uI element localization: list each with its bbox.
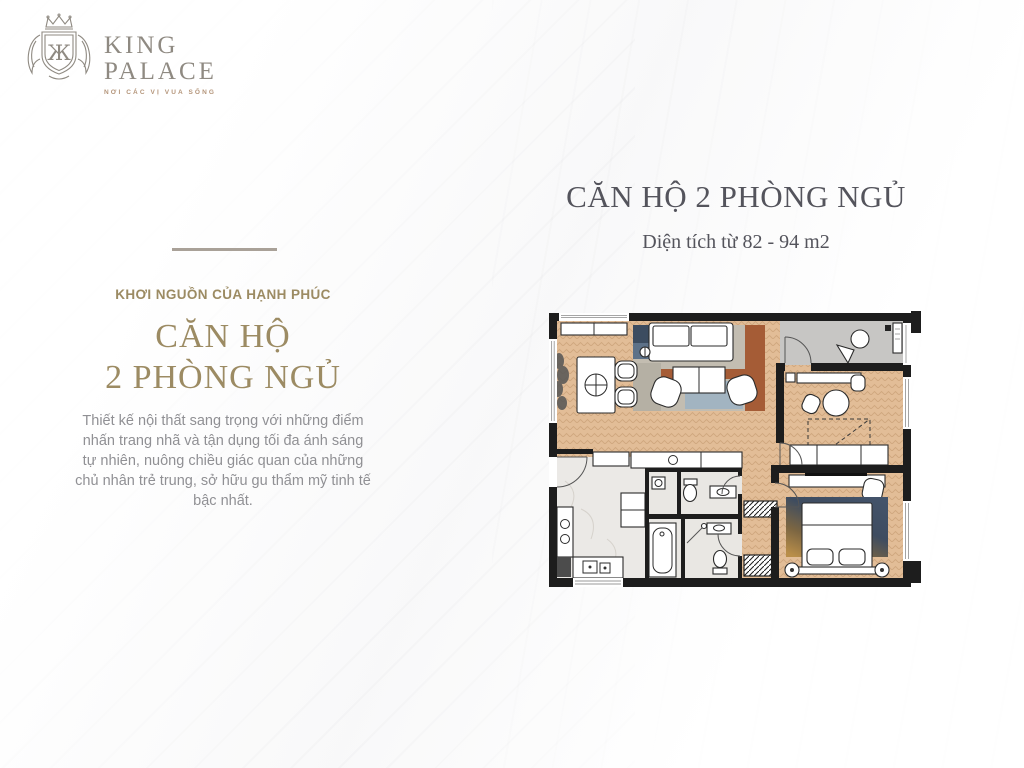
bed: [798, 503, 876, 574]
floor-plan: [549, 311, 921, 589]
description-paragraph: Thiết kế nội thất sang trọng với những đ…: [75, 411, 371, 511]
brand-tagline: NƠI CÁC VỊ VUA SỐNG: [104, 89, 217, 96]
eyebrow-text: KHƠI NGUỒN CỦA HẠNH PHÚC: [57, 287, 389, 302]
brand-logo: Ж KING PALACE NƠI CÁC VỊ VUA SỐNG: [22, 13, 217, 96]
dining-chair: [615, 387, 637, 407]
bathtub-icon: [649, 523, 676, 577]
left-title: CĂN HỘ 2 PHÒNG NGỦ: [57, 316, 389, 398]
low-cabinet: [790, 445, 888, 465]
section-divider: [172, 248, 277, 251]
dining-chair: [615, 361, 637, 381]
left-title-line2: 2 PHÒNG NGỦ: [57, 357, 389, 398]
brand-name-line2: PALACE: [104, 59, 217, 85]
toilet-icon: [713, 551, 727, 575]
nightstand: [785, 563, 799, 577]
right-text-panel: CĂN HỘ 2 PHÒNG NGỦ Diện tích từ 82 - 94 …: [545, 179, 927, 254]
apartment-title: CĂN HỘ 2 PHÒNG NGỦ: [545, 179, 927, 215]
brand-name-line1: KING: [104, 33, 217, 59]
dining-table: [577, 357, 615, 413]
king-palace-crest-icon: Ж: [22, 13, 96, 89]
toilet-icon: [684, 479, 698, 502]
floor-lamp-icon: [640, 347, 650, 357]
crest-monogram: Ж: [47, 41, 71, 65]
left-title-line1: CĂN HỘ: [57, 316, 389, 357]
round-table: [823, 390, 849, 416]
nightstand: [875, 563, 889, 577]
floor-plan-drawing: [549, 311, 921, 589]
console-table: [561, 323, 627, 335]
sofa: [649, 323, 733, 361]
area-subtitle: Diện tích từ 82 - 94 m2: [545, 231, 927, 254]
left-text-panel: KHƠI NGUỒN CỦA HẠNH PHÚC CĂN HỘ 2 PHÒNG …: [57, 287, 389, 511]
tv-icon: [805, 473, 867, 476]
sink-icon: [707, 523, 731, 534]
